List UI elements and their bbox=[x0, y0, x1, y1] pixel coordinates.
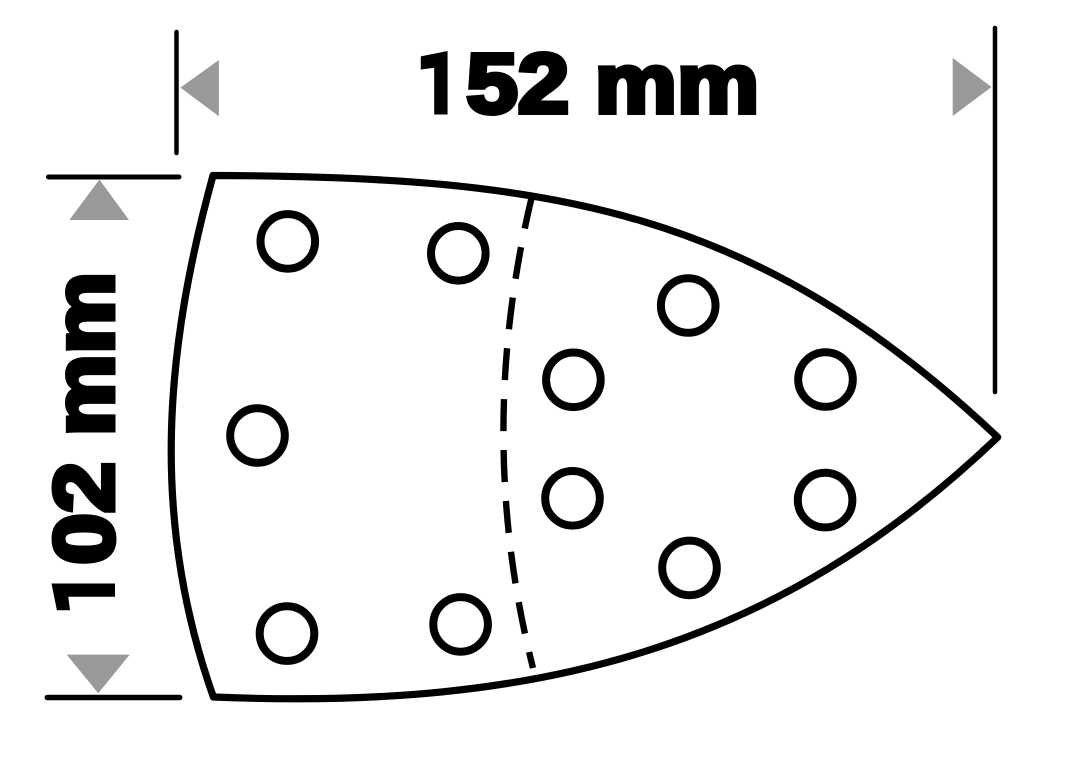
svg-text:52 mm: 52 mm bbox=[466, 36, 759, 130]
svg-text:02 mm: 02 mm bbox=[37, 272, 131, 565]
